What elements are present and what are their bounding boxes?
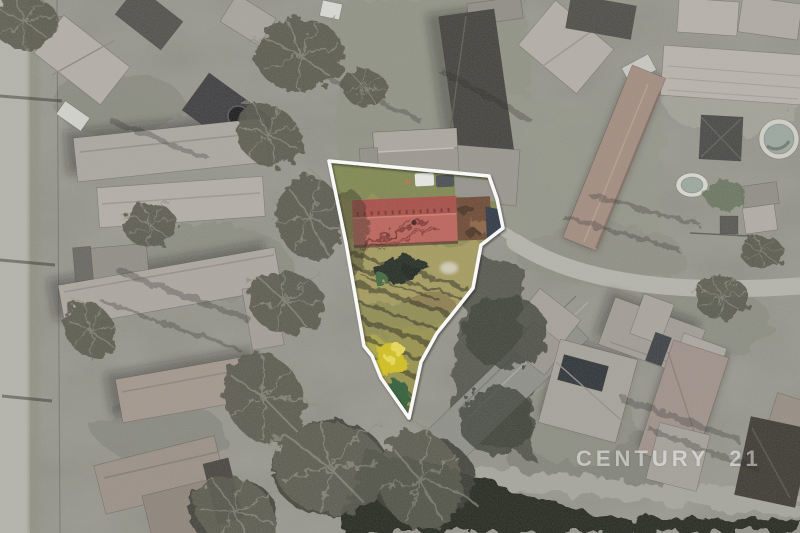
aerial-photo: CENTURY 21	[0, 0, 800, 533]
watermark-century21: CENTURY 21	[576, 446, 762, 472]
